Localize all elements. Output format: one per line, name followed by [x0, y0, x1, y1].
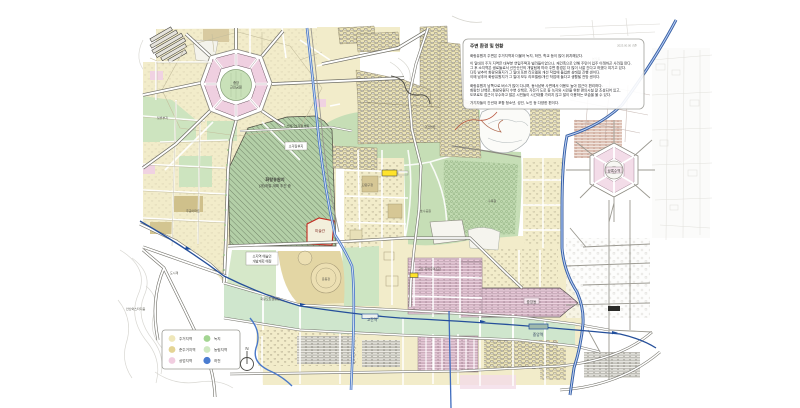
svg-text:녹지: 녹지: [214, 336, 221, 341]
svg-text:근린공원: 근린공원: [230, 85, 242, 90]
svg-text:고잔연립: 고잔연립: [424, 124, 435, 129]
svg-text:수목원: 수목원: [488, 198, 497, 203]
svg-text:쓰레기소각장 부지: 쓰레기소각장 부지: [287, 123, 310, 128]
svg-text:도보로도 접근이 우수하고 많은 시민들이 시간대를 가리지: 도보로도 접근이 우수하고 많은 시민들이 시간대를 가리지 않고 많이 이용하…: [470, 92, 611, 97]
svg-text:소지역 예술인: 소지역 예술인: [252, 254, 271, 259]
svg-text:화랑유원지: 화랑유원지: [265, 176, 284, 183]
svg-text:다독 남추어 화랑유원지가 그 일대 또한 리모델링 개선: 다독 남추어 화랑유원지가 그 일대 또한 리모델링 개선 작업에 돌입한 상태…: [470, 70, 600, 75]
svg-text:주공아파트: 주공아파트: [186, 208, 200, 213]
svg-text:중앙동: 중앙동: [527, 299, 538, 304]
svg-text:호수공원: 호수공원: [420, 208, 431, 213]
svg-text:(재)개발 계획 추진 중: (재)개발 계획 추진 중: [259, 183, 292, 188]
svg-text:단원구청: 단원구청: [362, 182, 373, 187]
svg-text:가기자들이 간년대 포함 청소년, 성인, 노인 등 다양한: 가기자들이 간년대 포함 청소년, 성인, 노인 등 다양한 편이다.: [470, 100, 559, 105]
svg-text:미술관: 미술관: [315, 228, 326, 233]
svg-text:N: N: [245, 346, 248, 351]
svg-text:준주거지역: 준주거지역: [179, 347, 196, 352]
svg-text:농림지역: 농림지역: [214, 347, 227, 352]
svg-text:화랑오토캠핑장: 화랑오토캠핑장: [260, 296, 280, 301]
svg-text:이에 남추어 화랑유원지가 그 일대 모두 리모델링/개선: 이에 남추어 화랑유원지가 그 일대 모두 리모델링/개선 작업에 들다고 생활…: [470, 74, 600, 79]
svg-text:주거지역: 주거지역: [179, 336, 192, 341]
svg-text:주변 환경 및 현황: 주변 환경 및 현황: [470, 43, 504, 50]
svg-text:화랑유원지 주변은 주거지역과 더불어 녹지, 하천, 학교: 화랑유원지 주변은 주거지역과 더불어 녹지, 하천, 학교 등이 많이 위치해…: [470, 53, 583, 58]
svg-text:상록수역: 상록수역: [608, 168, 621, 173]
svg-text:도시재: 도시재: [170, 270, 179, 275]
svg-text:화랑유원지 남쪽으로 버스가 많이 다니며, 동서남북 사면: 화랑유원지 남쪽으로 버스가 많이 다니며, 동서남북 사면에서 이용도 높아 …: [470, 83, 603, 88]
svg-text:그 후 소지역은 생로들로서 신안산선의 개발됨에 따라 주: 그 후 소지역은 생로들로서 신안산선의 개발됨에 따라 주변 환경은 더 많이…: [470, 65, 626, 70]
svg-text:화랑천 산책로, 화랑유원지 수변 산책로, 자전거 도로: 화랑천 산책로, 화랑유원지 수변 산책로, 자전거 도로 등 녹지와 시민을 …: [470, 88, 621, 93]
svg-text:안산와스타디움: 안산와스타디움: [126, 306, 146, 311]
svg-text:하천: 하천: [214, 358, 221, 363]
svg-text:중앙역: 중앙역: [533, 332, 544, 337]
svg-text:중앙: 중앙: [233, 80, 239, 85]
svg-text:개발계획 예정: 개발계획 예정: [252, 259, 271, 264]
svg-text:상업지역: 상업지역: [179, 358, 192, 363]
svg-text:텃밭부지: 텃밭부지: [157, 115, 168, 120]
svg-text:이 일대의 주거 지역은 대부분 연립주택과 빌라들이었으나: 이 일대의 주거 지역은 대부분 연립주택과 빌라들이었으나, 재건축으로 인해…: [470, 61, 632, 66]
svg-text:소각장부지: 소각장부지: [289, 144, 304, 149]
svg-text:운동장: 운동장: [322, 276, 331, 281]
svg-text:2023.00.00 기준: 2023.00.00 기준: [617, 44, 637, 48]
svg-text:고잔역: 고잔역: [367, 317, 378, 322]
svg-text:고잔 지역주택조합: 고잔 지역주택조합: [418, 266, 441, 271]
